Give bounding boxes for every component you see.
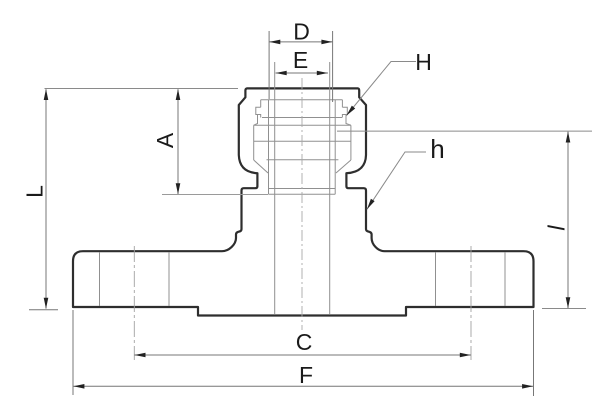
svg-text:h: h: [430, 134, 444, 164]
svg-text:L: L: [22, 185, 48, 198]
svg-text:D: D: [293, 19, 310, 45]
svg-text:H: H: [415, 49, 432, 75]
svg-text:A: A: [152, 132, 178, 148]
svg-text:l: l: [544, 225, 570, 231]
svg-text:C: C: [296, 329, 313, 355]
svg-text:E: E: [293, 47, 308, 73]
svg-text:F: F: [299, 362, 313, 388]
